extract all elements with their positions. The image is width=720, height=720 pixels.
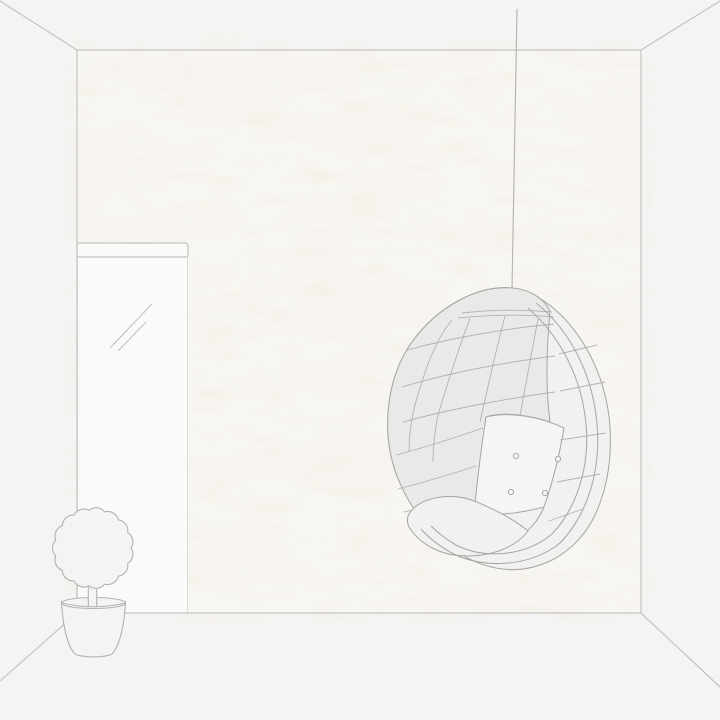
mirror-frame-top	[77, 243, 188, 257]
cushion-button	[542, 490, 547, 495]
ceiling-edge-left	[0, 1, 77, 50]
ceiling-edge-right	[641, 1, 720, 50]
cushion-button	[513, 453, 518, 458]
floor-corner-right	[641, 613, 720, 687]
room-mockup	[0, 0, 720, 720]
cushion-button	[555, 456, 560, 461]
cushion-button	[508, 489, 513, 494]
plant-pot-body	[62, 601, 126, 657]
plant-trunk	[88, 586, 96, 607]
